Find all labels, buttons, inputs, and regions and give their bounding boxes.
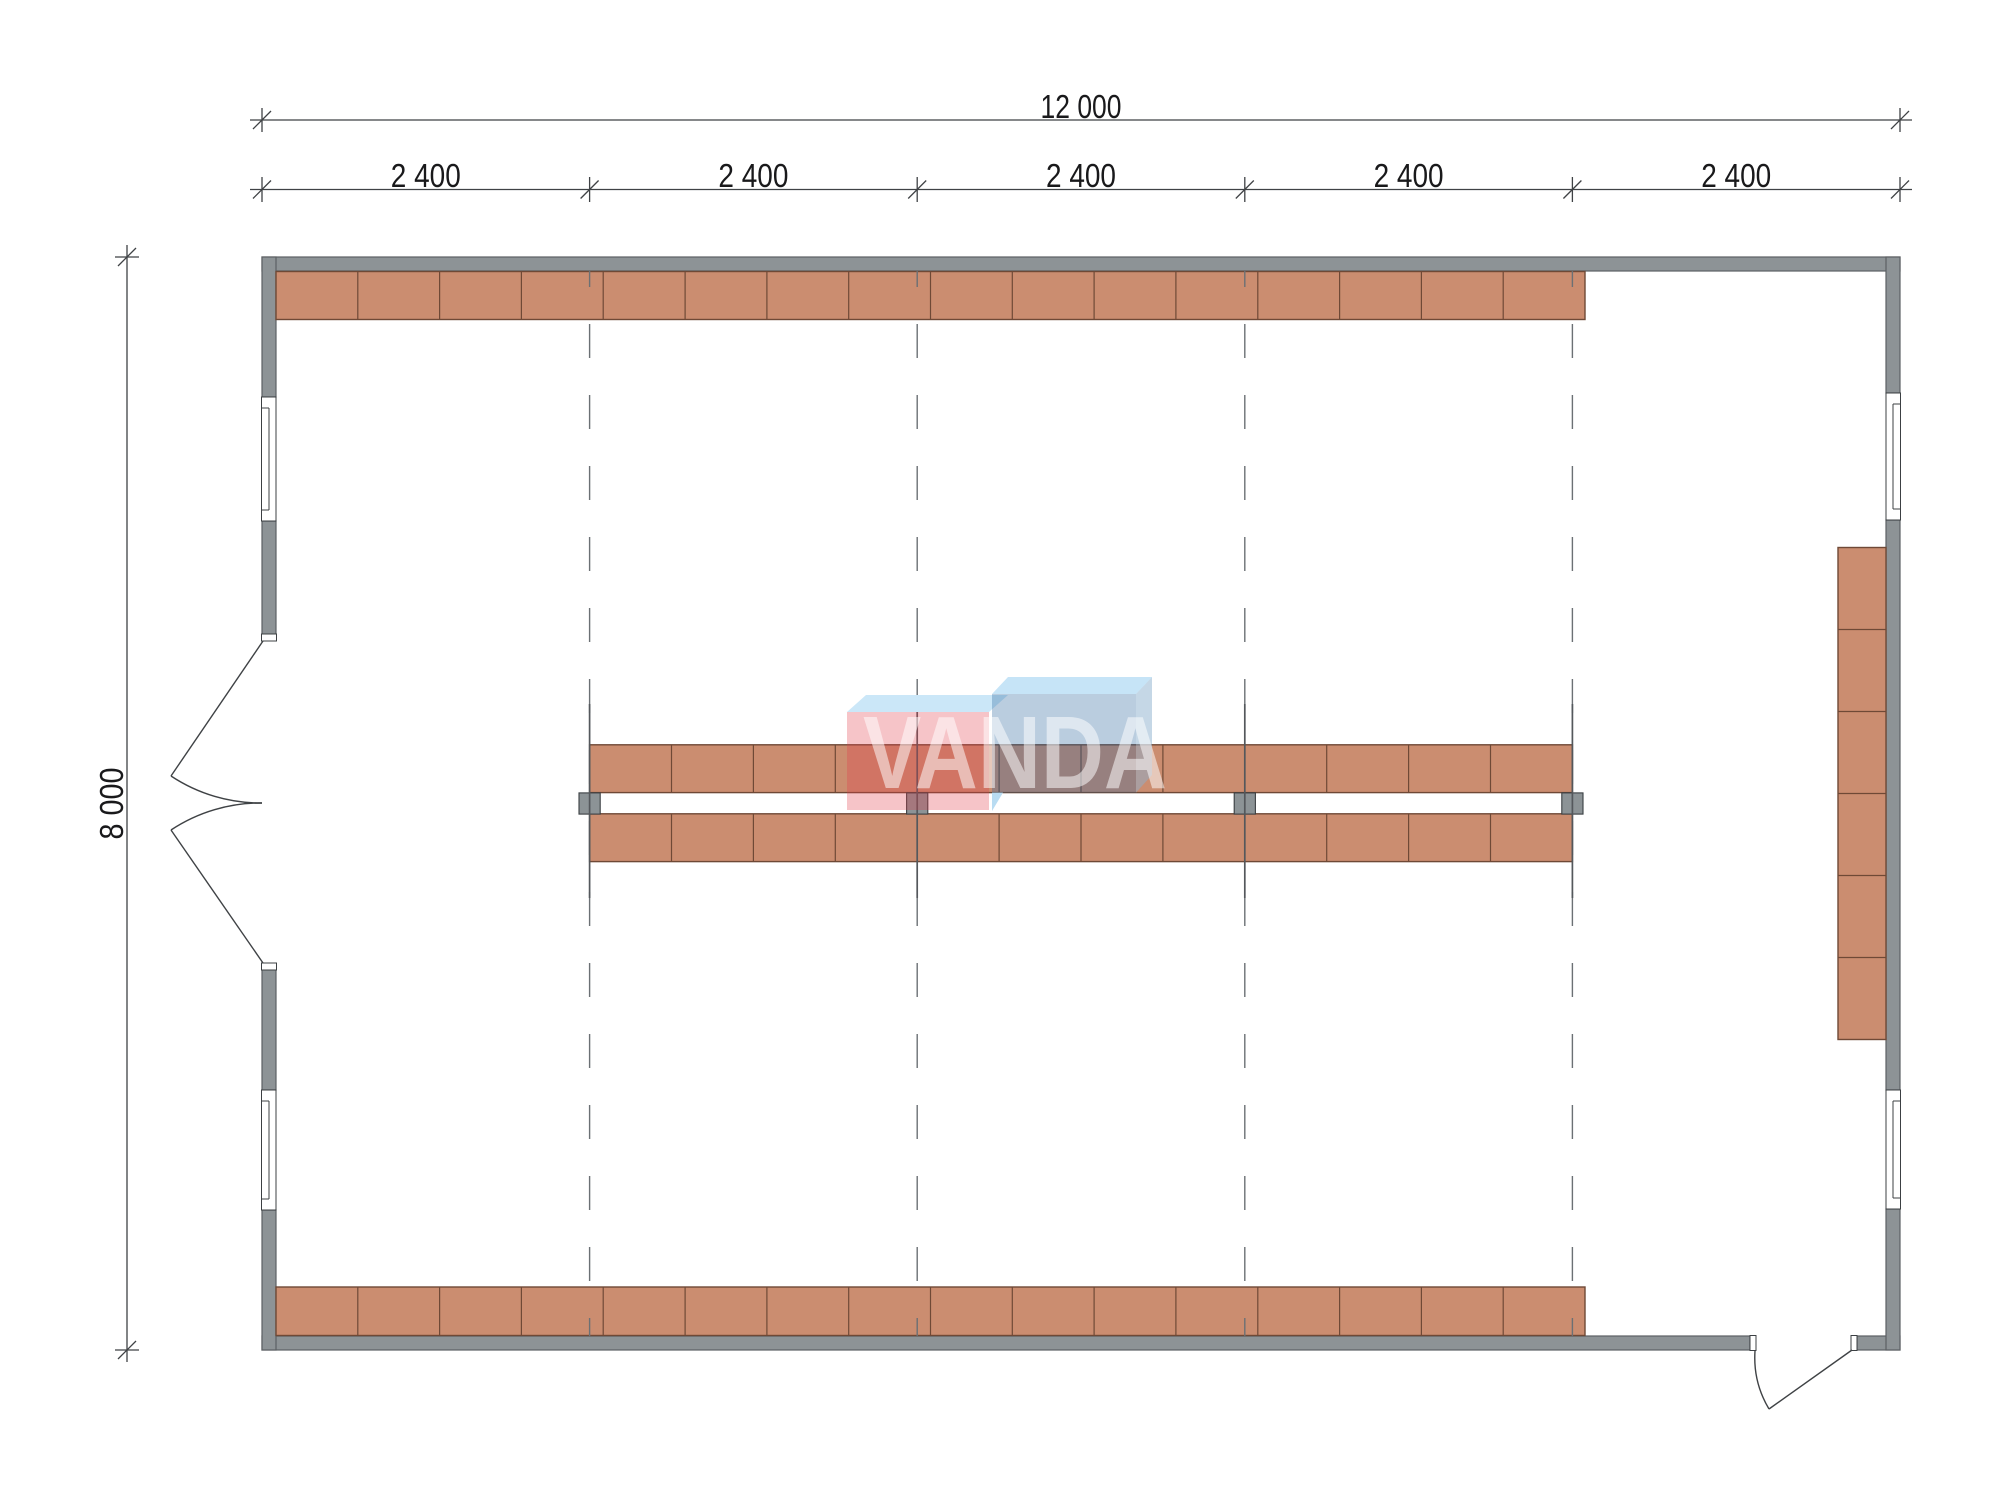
svg-text:2 400: 2 400 [1701,157,1771,194]
svg-text:2 400: 2 400 [391,157,461,194]
svg-text:VANDA: VANDA [863,695,1167,810]
svg-text:2 400: 2 400 [718,157,788,194]
svg-text:8 000: 8 000 [93,768,130,840]
svg-text:2 400: 2 400 [1046,157,1116,194]
svg-text:12 000: 12 000 [1041,88,1122,125]
svg-text:2 400: 2 400 [1374,157,1444,194]
